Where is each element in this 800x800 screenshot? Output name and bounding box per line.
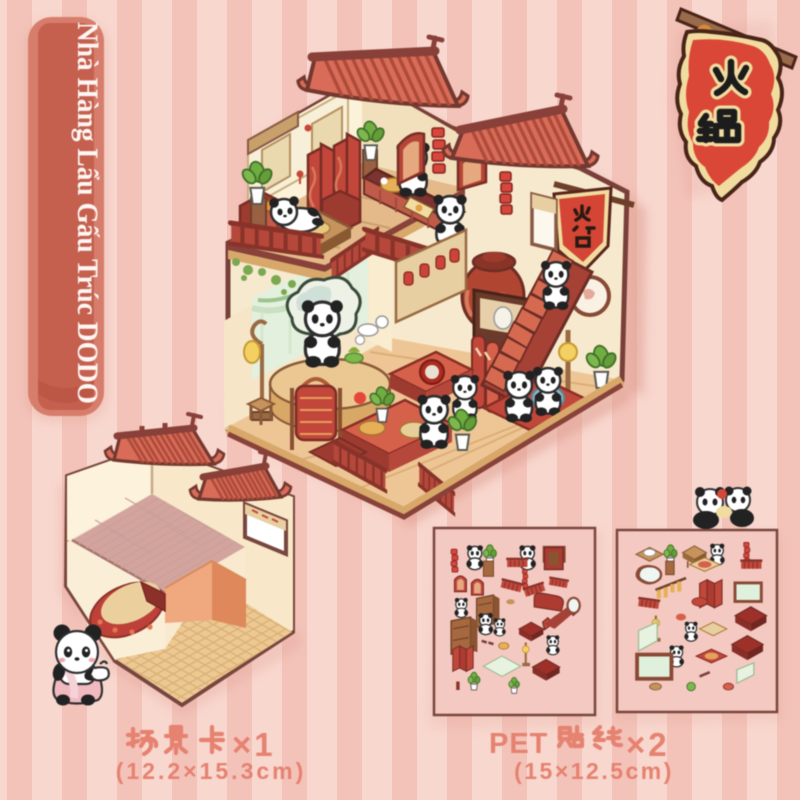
svg-text:(15×12.5cm): (15×12.5cm) bbox=[514, 758, 674, 784]
svg-text:(12.2×15.3cm): (12.2×15.3cm) bbox=[116, 758, 307, 784]
svg-text:PET: PET bbox=[489, 728, 548, 760]
svg-text:Nhà Hàng Lẩu Gấu Trúc DODO: Nhà Hàng Lẩu Gấu Trúc DODO bbox=[71, 22, 104, 404]
